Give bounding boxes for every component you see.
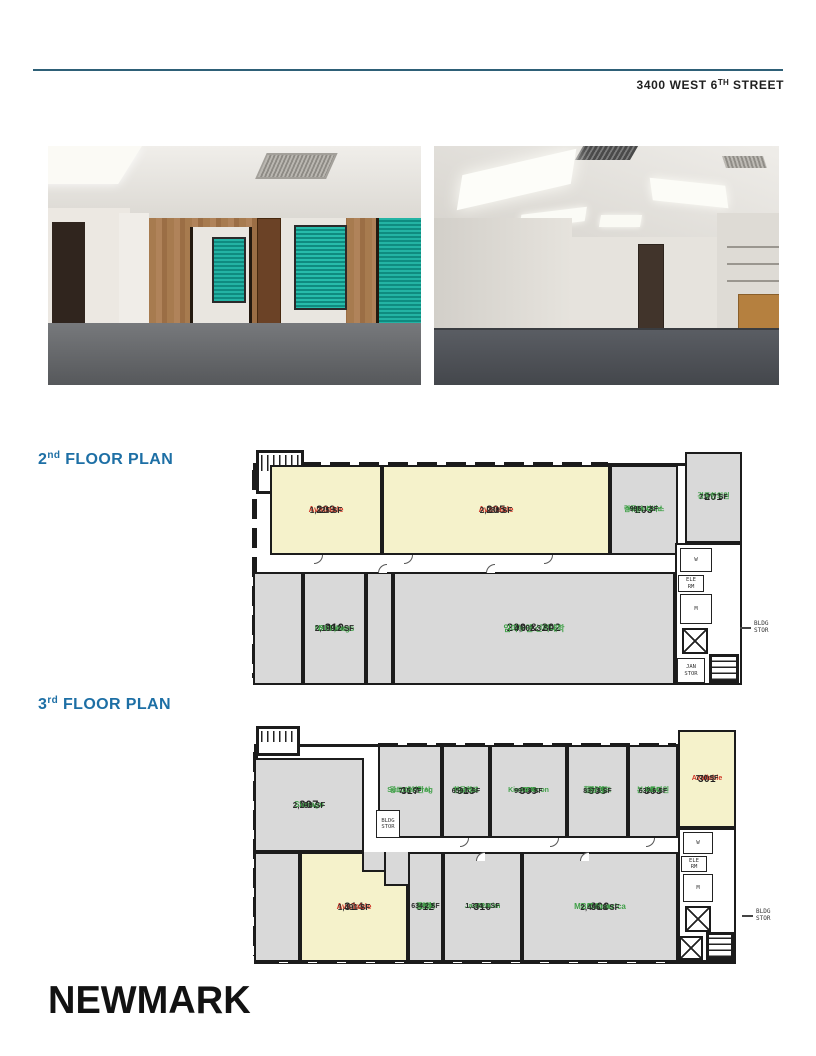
left-wall xyxy=(434,218,572,333)
bldg-storage-annotation: BLDG STOR xyxy=(754,620,768,634)
address-tail: STREET xyxy=(729,78,784,92)
restroom-men-label: M xyxy=(694,606,697,612)
floor3-heading-rest: FLOOR PLAN xyxy=(58,696,171,713)
shelf-2 xyxy=(727,263,779,265)
ele-room-label: ELE RM xyxy=(686,577,696,590)
room-sf: 2,496.8 SF xyxy=(580,903,619,912)
room-205: 205 Available 2,980 SF xyxy=(382,465,610,555)
room-200-202: 200 & 202 임마누엘 신학대학 4,602.3 SF xyxy=(393,572,675,685)
floor3-ordinal: rd xyxy=(47,695,58,706)
dark-door xyxy=(638,244,664,330)
room-sf: 634.2 SF xyxy=(411,903,439,911)
stairs-rear xyxy=(706,932,734,960)
room-sf: 717.7 SF xyxy=(699,494,727,502)
address-ordinal: TH xyxy=(718,78,729,87)
shelf-3 xyxy=(727,280,779,282)
floor2-ordinal: nd xyxy=(47,450,60,461)
header-rule xyxy=(33,69,783,71)
white-pillar xyxy=(119,213,149,328)
light-panel-3 xyxy=(599,215,642,227)
room-203: 203 Mega-Com 컴퓨터 서비스 995.1 SF xyxy=(610,465,678,555)
room-303: 303 MBC 본사특파원 632.6 SF xyxy=(628,745,678,838)
teal-window-far-right xyxy=(376,218,421,328)
carpet-floor xyxy=(434,328,779,385)
bldg-storage-room-label: BLDG STOR xyxy=(381,818,394,831)
stair-treads xyxy=(261,731,297,742)
room-300: 300 MBC America Mstore 2,496.8 SF xyxy=(522,852,678,962)
room-sf: 770 SF xyxy=(696,775,719,783)
floor3-plan: 307 Storage 2,190 SF 317 Summer Frog 광고 … xyxy=(250,720,780,970)
room-305: 305 힐링 핸드 한의원 837.8 SF xyxy=(567,745,628,838)
stairs xyxy=(256,726,300,756)
room-309: 309 Kim & Moon CPA 991.8 SF xyxy=(490,745,567,838)
photo-wood-paneled-office xyxy=(48,146,421,385)
room-sf: 4,602.3 SF xyxy=(514,624,553,633)
stairs-rear xyxy=(709,654,739,683)
room-sf: 2,199.2 SF xyxy=(315,624,354,633)
room-310: 310 Jae C. Kim CPA 1,334.1 SF xyxy=(443,852,522,962)
dark-doorway-left xyxy=(52,222,86,327)
address-main: 3400 WEST 6 xyxy=(637,78,718,92)
ele-room: ELE RM xyxy=(678,575,704,592)
room-201: 201 경동한의원 717.7 SF xyxy=(685,452,742,543)
floor3-number: 3 xyxy=(38,696,47,713)
room-301: 301 Available 770 SF xyxy=(678,730,736,828)
room-sf: 632.6 SF xyxy=(639,788,667,796)
janitor-storage: JAN STOR xyxy=(677,658,705,683)
ceiling-vent-2 xyxy=(722,156,767,168)
ele-room: ELE RM xyxy=(681,856,707,872)
floor3-heading: 3rd FLOOR PLAN xyxy=(38,695,171,714)
bldg-storage-annotation: BLDG STOR xyxy=(756,908,770,922)
room-sf: 659.5 SF xyxy=(452,788,480,796)
room-sf: 715 SF xyxy=(399,788,422,796)
newmark-logo: NEWMARK xyxy=(48,980,251,1024)
room-312: 312 CHA 한방 클리닉 634.2 SF xyxy=(408,852,443,962)
pointer-line xyxy=(742,915,753,917)
room-unlabeled-left xyxy=(253,572,303,685)
room-unlabeled-mid xyxy=(366,572,393,685)
restroom-women-label: W xyxy=(696,840,699,846)
floor2-number: 2 xyxy=(38,451,47,468)
photo-empty-office xyxy=(434,146,779,385)
room-sf: 2,190 SF xyxy=(293,801,325,810)
ceiling-vent xyxy=(255,153,337,179)
room-sf: 1,325 SF xyxy=(310,506,342,515)
flyer-page: 3400 WEST 6TH STREET 2nd xyxy=(0,0,816,1056)
restroom-men: M xyxy=(683,874,713,902)
ele-room-label: ELE RM xyxy=(689,858,699,871)
carpet-floor xyxy=(48,323,421,385)
elevator xyxy=(682,628,708,654)
room-sf: 995.1 SF xyxy=(630,506,658,514)
room-sf: 837.8 SF xyxy=(583,788,611,796)
open-wood-door xyxy=(257,218,281,335)
restroom-men-label: M xyxy=(696,885,699,891)
restroom-men: M xyxy=(680,594,712,624)
elevator xyxy=(685,906,711,932)
room-210: 210 Natterings SLP,Inc. 2,199.2 SF xyxy=(303,572,366,685)
ceiling-vent xyxy=(575,146,638,160)
room-307: 307 Storage 2,190 SF xyxy=(254,758,364,852)
room-307-lower-wing xyxy=(254,852,300,962)
room-sf: 991.8 SF xyxy=(514,788,542,796)
restroom-women: W xyxy=(683,832,713,854)
shelf-1 xyxy=(727,246,779,248)
elevator-2 xyxy=(679,936,703,960)
room-sf: 1,491 SF xyxy=(338,903,370,912)
room-313: 313 Hanuel 한글학교 659.5 SF xyxy=(442,745,490,838)
restroom-women-label: W xyxy=(694,557,697,563)
floor2-plan: ELEC RM 209 Available 1,325 SF 205 Avail… xyxy=(248,448,778,692)
floor2-heading: 2nd FLOOR PLAN xyxy=(38,450,173,469)
room-209: 209 Available 1,325 SF xyxy=(270,465,382,555)
property-address: 3400 WEST 6TH STREET xyxy=(637,78,784,92)
janitor-storage-label: JAN STOR xyxy=(684,664,697,677)
room-sf: 1,334.1 SF xyxy=(465,903,499,911)
floor2-heading-rest: FLOOR PLAN xyxy=(60,451,173,468)
teal-window-center xyxy=(212,237,246,303)
pointer-line xyxy=(740,627,751,629)
wall-step xyxy=(384,852,408,886)
bldg-storage-room: BLDG STOR xyxy=(376,810,400,838)
room-sf: 2,980 SF xyxy=(480,506,512,515)
teal-window-right xyxy=(294,225,346,310)
restroom-women: W xyxy=(680,548,712,572)
